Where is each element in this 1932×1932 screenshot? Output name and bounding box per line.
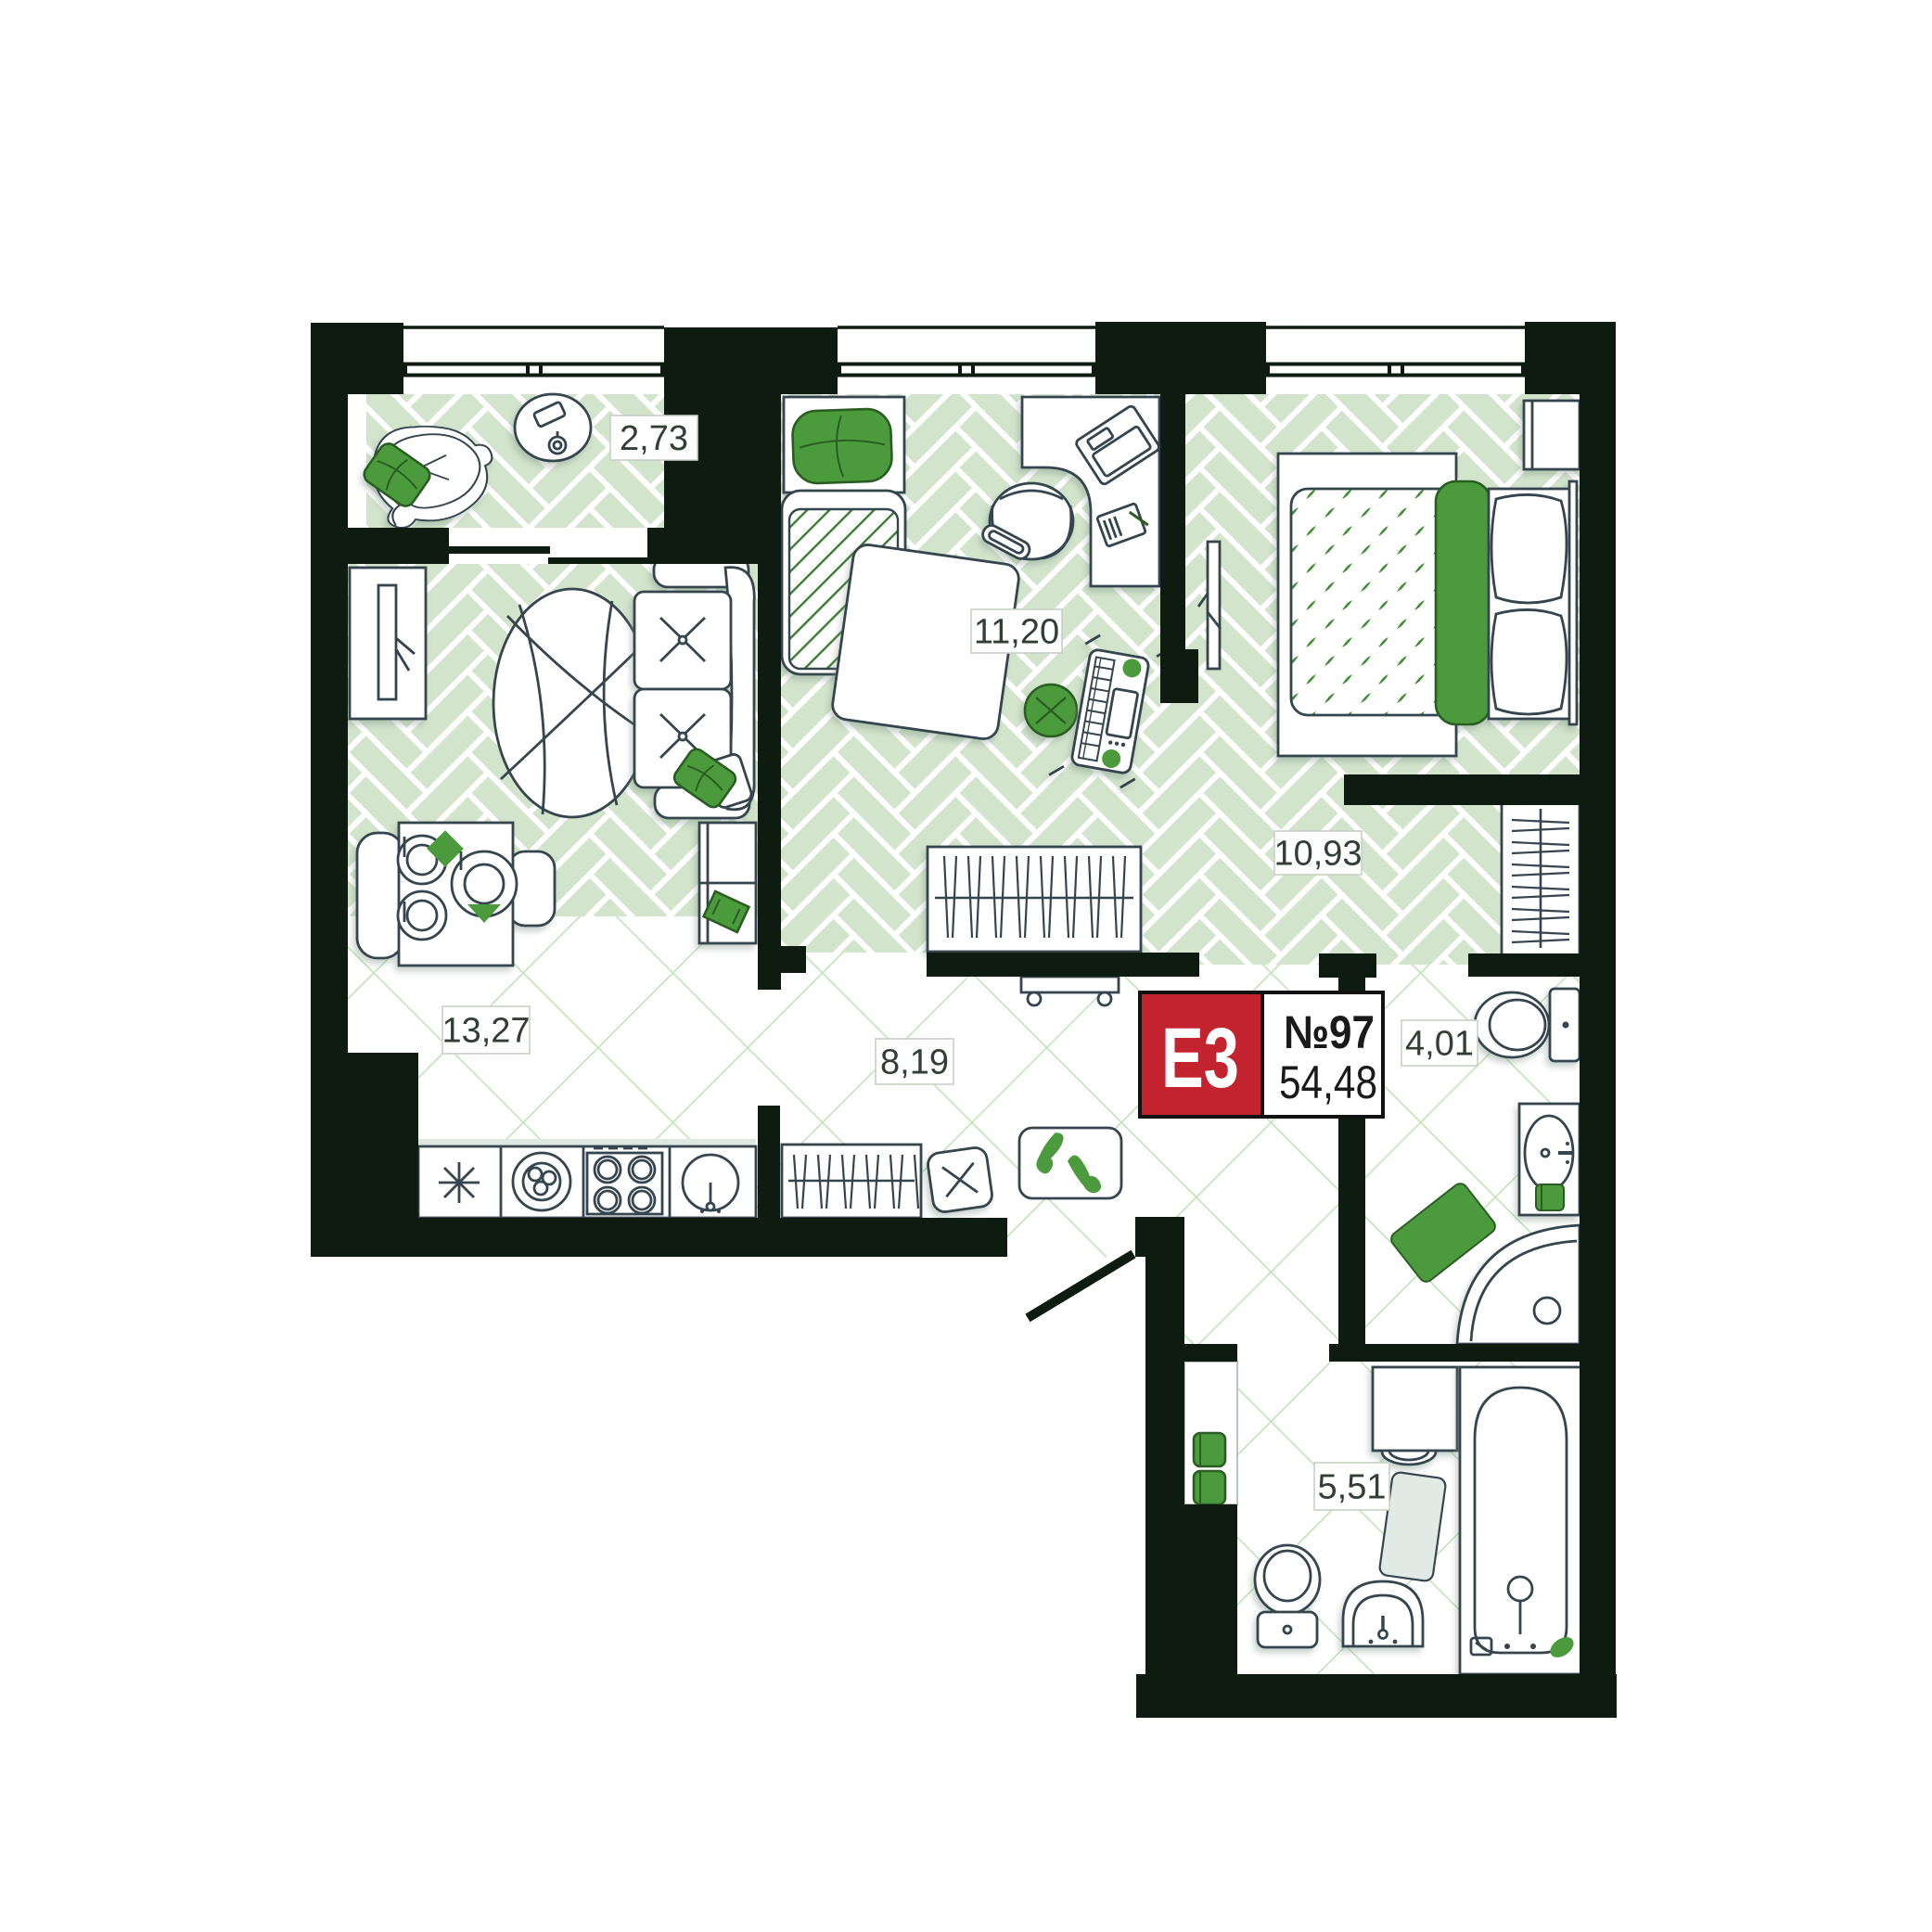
svg-text:4,01: 4,01 xyxy=(1405,1025,1474,1064)
svg-text:13,27: 13,27 xyxy=(441,1012,530,1051)
svg-text:E3: E3 xyxy=(1161,1011,1239,1106)
svg-text:54,48: 54,48 xyxy=(1279,1056,1377,1108)
svg-text:2,73: 2,73 xyxy=(620,419,688,458)
svg-text:10,93: 10,93 xyxy=(1273,835,1362,874)
svg-text:11,20: 11,20 xyxy=(974,613,1059,652)
svg-text:8,19: 8,19 xyxy=(880,1043,949,1082)
svg-text:5,51: 5,51 xyxy=(1318,1468,1387,1507)
svg-text:№97: №97 xyxy=(1284,1006,1375,1058)
